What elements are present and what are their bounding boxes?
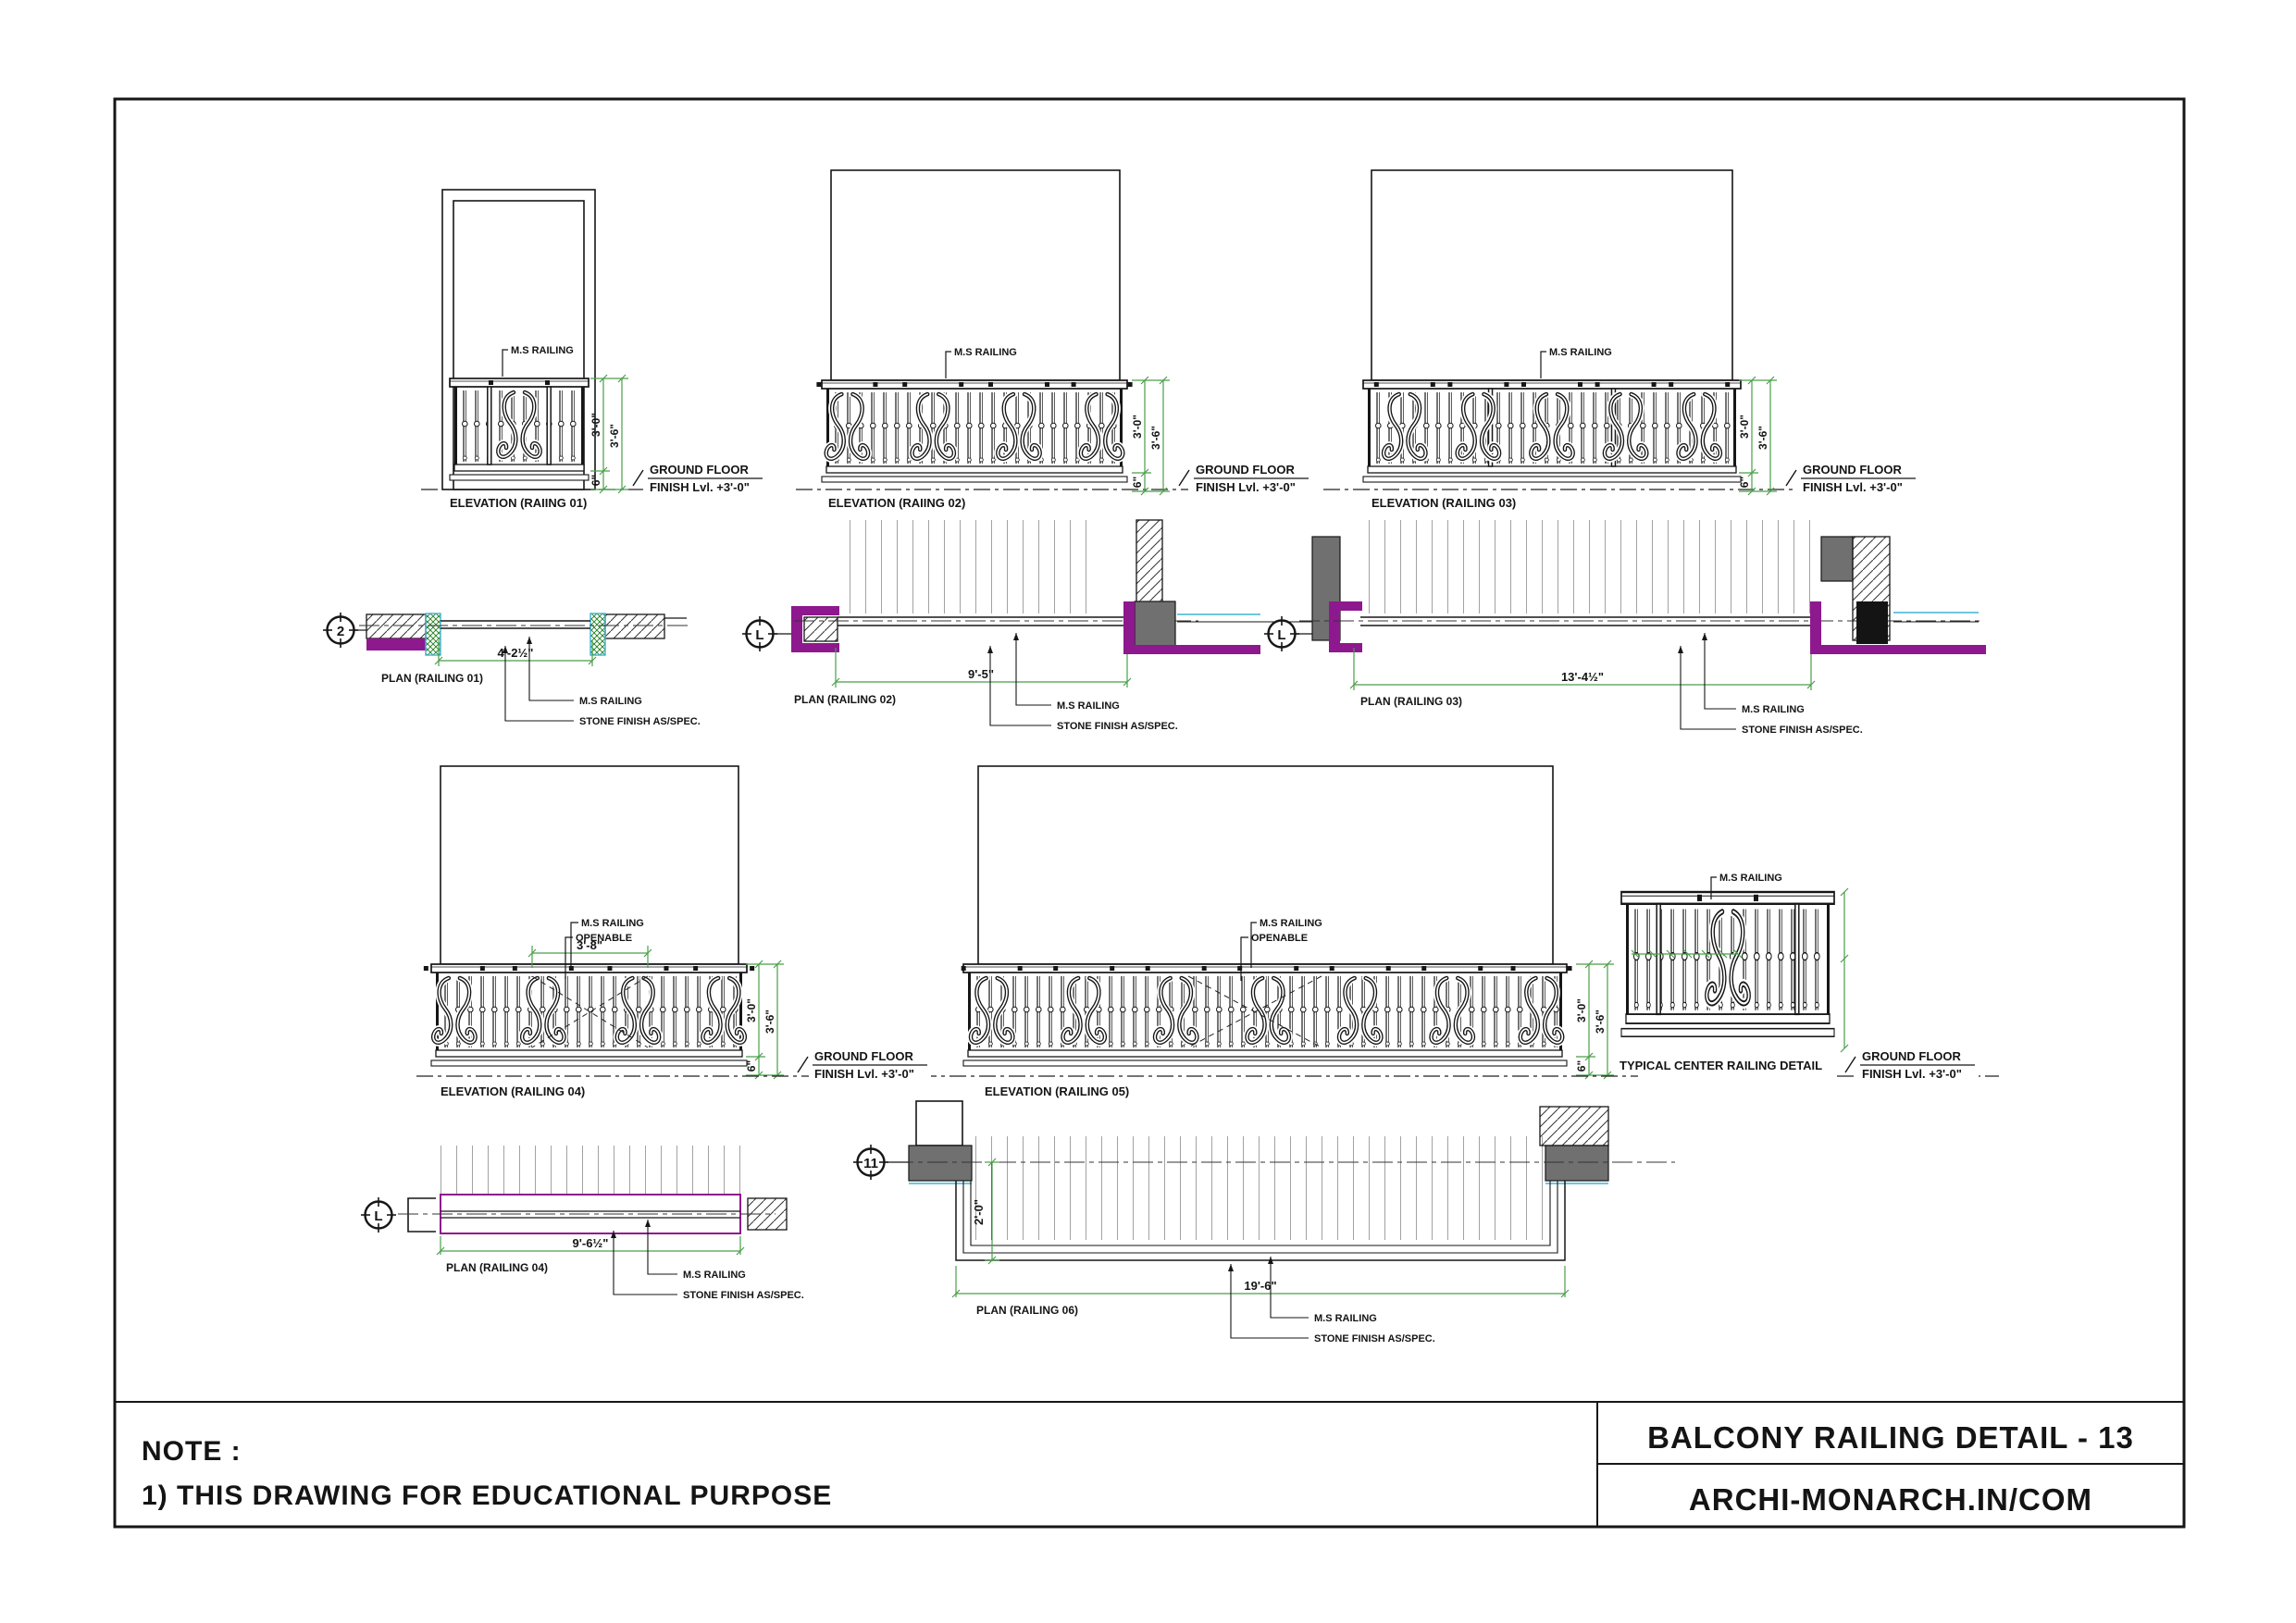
ms-railing-label-p1: M.S RAILING xyxy=(579,696,642,707)
elevation-05-label: ELEVATION (RAILING 05) xyxy=(985,1084,1129,1098)
plan-01-drawing: 2 4'-2½" PLAN (RAILING 01) M.S RAILING S… xyxy=(323,613,701,727)
plan-02-bubble-label: L xyxy=(755,627,763,643)
drawing-sheet: 3'-0" 6" 3'-6" GROUND FLOOR FINISH Lvl. … xyxy=(0,0,2296,1623)
plan-01-bubble-label: 2 xyxy=(337,624,344,639)
drawing-title: BALCONY RAILING DETAIL - 13 xyxy=(1647,1420,2134,1455)
elevation-05-drawing: M.S RAILING OPENABLE ELEVATION (RAILING … xyxy=(962,766,1614,1098)
center-railing-detail-label: TYPICAL CENTER RAILING DETAIL xyxy=(1620,1059,1822,1072)
note-heading: NOTE : xyxy=(142,1436,242,1467)
ms-railing-label-p2: M.S RAILING xyxy=(1057,700,1120,712)
elevation-04-label: ELEVATION (RAILING 04) xyxy=(441,1084,585,1098)
plan-03-label: PLAN (RAILING 03) xyxy=(1360,695,1462,708)
plan-06-label: PLAN (RAILING 06) xyxy=(976,1304,1078,1317)
elevation-01-drawing: M.S RAILING ELEVATION (RAIING 01) xyxy=(421,190,766,510)
website-text: ARCHI-MONARCH.IN/COM xyxy=(1689,1482,2092,1517)
elevation-02-label: ELEVATION (RAIING 02) xyxy=(828,496,965,510)
ms-railing-label-e2: M.S RAILING xyxy=(954,347,1017,358)
column-section-solid xyxy=(1856,601,1888,644)
plan-03-bubble-label: L xyxy=(1277,627,1285,643)
stone-finish-label-p6: STONE FINISH AS/SPEC. xyxy=(1314,1333,1435,1344)
plan-02-label: PLAN (RAILING 02) xyxy=(794,693,896,706)
railing-linework xyxy=(424,964,754,1066)
plan-03-drawing: L 13'-4½" PLAN (RAILING 03) M.S RAILING … xyxy=(1264,520,1986,736)
plan-01-dim: 4'-2½" xyxy=(498,646,534,660)
railing-linework xyxy=(1363,380,1741,482)
ms-railing-label-e1: M.S RAILING xyxy=(511,345,574,356)
plan-04-drawing: L 9'-6½" PLAN (RAILING 04) M.S RAILING S… xyxy=(361,1146,804,1301)
ms-railing-label-p4: M.S RAILING xyxy=(683,1270,746,1281)
plan-03-dim: 13'-4½" xyxy=(1561,670,1604,684)
ms-railing-label-p6: M.S RAILING xyxy=(1314,1313,1377,1324)
railing-linework xyxy=(962,964,1572,1066)
stone-finish-label-p3: STONE FINISH AS/SPEC. xyxy=(1742,725,1863,736)
ms-railing-label-p3: M.S RAILING xyxy=(1742,704,1805,715)
plan-04-bubble-label: L xyxy=(374,1208,382,1224)
plan-04-label: PLAN (RAILING 04) xyxy=(446,1261,548,1274)
plan-06-drawing: 11 2'-0" 19'-6" PLAN (RAILING 06) M.S RA… xyxy=(853,1101,1675,1344)
stone-finish-label-p4: STONE FINISH AS/SPEC. xyxy=(683,1290,804,1301)
openable-label-e4: OPENABLE xyxy=(576,933,632,944)
railing-linework xyxy=(816,380,1132,482)
elevation-04-drawing: 3'-8" M.S RAILING OPENABLE ELEVATION (RA… xyxy=(424,766,784,1098)
elevation-03-label: ELEVATION (RAILING 03) xyxy=(1371,496,1516,510)
plan-06-dim: 19'-6" xyxy=(1244,1279,1276,1293)
plan-02-drawing: L 9'-5" PLAN (RAILING 02) M.S RAILING ST… xyxy=(742,520,1323,732)
note-line-1: 1) THIS DRAWING FOR EDUCATIONAL PURPOSE xyxy=(142,1481,832,1511)
ms-railing-label-e4: M.S RAILING xyxy=(581,918,644,929)
openable-label-e5: OPENABLE xyxy=(1251,933,1308,944)
ms-railing-label-detail: M.S RAILING xyxy=(1719,873,1782,884)
plan-01-label: PLAN (RAILING 01) xyxy=(381,672,483,685)
stone-finish-label-p1: STONE FINISH AS/SPEC. xyxy=(579,716,701,727)
typical-center-railing-detail: M.S RAILING TYPICAL CENTER RAILING DETAI… xyxy=(1620,873,1999,1082)
stone-finish-label-p2: STONE FINISH AS/SPEC. xyxy=(1057,721,1178,732)
plan-06-bubble-label: 11 xyxy=(863,1156,878,1171)
elevation-02-drawing: M.S RAILING ELEVATION (RAIING 02) xyxy=(796,170,1312,510)
ms-railing-label-e5: M.S RAILING xyxy=(1260,918,1322,929)
plan-06-return-dim: 2'-0" xyxy=(972,1199,986,1225)
ms-railing-label-e3: M.S RAILING xyxy=(1549,347,1612,358)
railing-linework xyxy=(1621,892,1834,1036)
elevation-03-drawing: M.S RAILING ELEVATION (RAILING 03) xyxy=(1323,170,1919,510)
elevation-01-label: ELEVATION (RAIING 01) xyxy=(450,496,587,510)
plan-04-dim: 9'-6½" xyxy=(573,1236,609,1250)
